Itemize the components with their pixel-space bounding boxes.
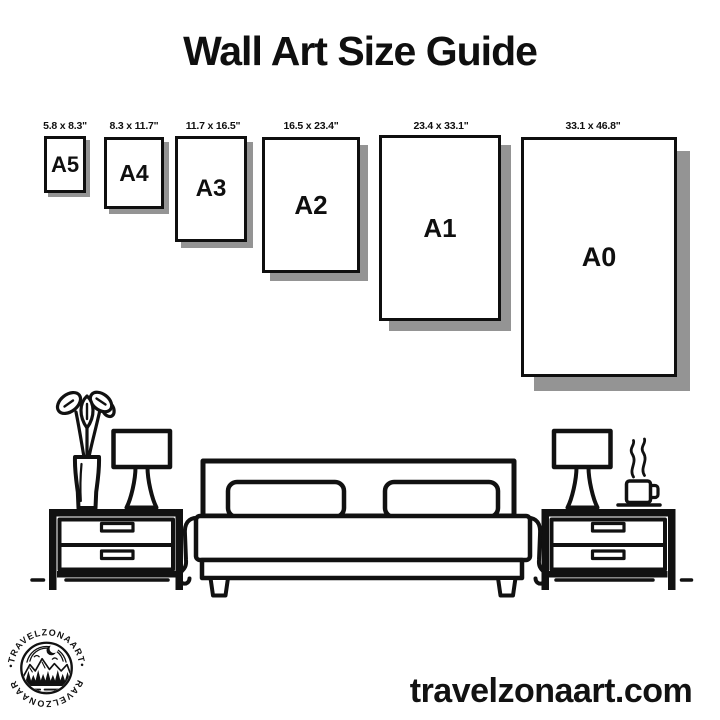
size-label-a3: 11.7 x 16.5": [186, 120, 241, 132]
size-code-a1: A1: [423, 213, 456, 244]
size-label-a4: 8.3 x 11.7": [110, 120, 159, 132]
size-code-a5: A5: [51, 152, 79, 178]
drawer-handle: [593, 524, 625, 532]
lamp-base: [568, 467, 598, 508]
vase: [75, 457, 99, 508]
vase-highlight: [80, 464, 81, 501]
size-frame-a3: A3: [175, 136, 247, 242]
lamp-shade: [554, 431, 611, 467]
lamp-base: [127, 467, 157, 508]
cup-body: [627, 481, 651, 503]
size-code-a3: A3: [196, 175, 227, 203]
bedroom-illustration: [0, 380, 720, 610]
website-url: travelzonaart.com: [410, 672, 693, 711]
size-frame-a5: A5: [44, 136, 86, 193]
drawer-handle: [102, 524, 134, 532]
wall-art-size-guide-poster: Wall Art Size Guide 5.8 x 8.3" 8.3 x 11.…: [0, 0, 720, 720]
size-code-a4: A4: [119, 160, 148, 187]
size-label-a2: 16.5 x 23.4": [283, 120, 338, 132]
size-code-a0: A0: [582, 242, 617, 273]
table-lamp-right-icon: [554, 431, 611, 508]
bed-leg: [498, 578, 516, 596]
size-label-a5: 5.8 x 8.3": [43, 120, 87, 132]
size-label-a0: 33.1 x 46.8": [565, 120, 620, 132]
size-frame-a4: A4: [104, 137, 164, 209]
pillow: [385, 482, 498, 517]
bed-base: [202, 560, 522, 578]
table-lamp-left-icon: [114, 431, 171, 508]
size-label-a1: 23.4 x 33.1": [413, 120, 468, 132]
size-frame-a2: A2: [262, 137, 360, 273]
bed-icon: [179, 461, 546, 596]
logo-badge: •TRAVELZONAART• •TRAVELZONAART•: [2, 620, 92, 716]
steam: [631, 441, 634, 478]
lamp-shade: [114, 431, 171, 467]
potted-plant-icon: [54, 388, 117, 508]
size-code-a2: A2: [294, 190, 327, 221]
size-frame-a0: A0: [521, 137, 677, 377]
size-frame-a1: A1: [379, 135, 501, 321]
drawer-handle: [102, 551, 134, 559]
coffee-cup-icon: [618, 439, 660, 505]
drawer-handle: [593, 551, 625, 559]
steam: [642, 439, 645, 476]
pillow: [228, 482, 344, 517]
page-title: Wall Art Size Guide: [0, 28, 720, 75]
duvet: [196, 516, 530, 560]
bed-leg: [211, 578, 229, 596]
